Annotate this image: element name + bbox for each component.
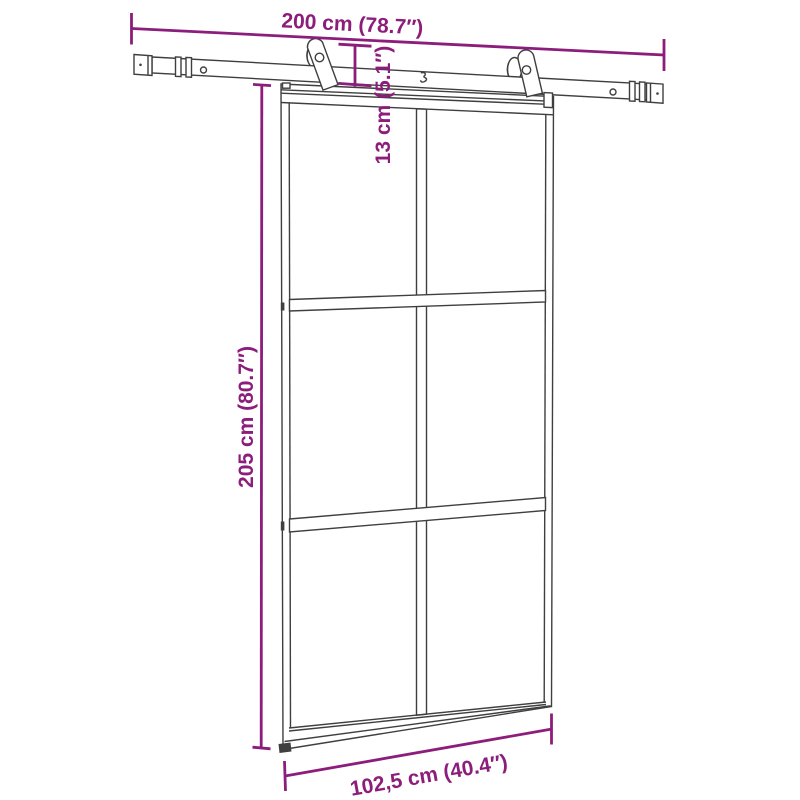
roller-bolt-right xyxy=(522,66,530,74)
dimension-tick-bottom xyxy=(253,747,271,749)
diagram-canvas: 200 cm (78.7″) 13 cm (5.1″) 205 cm (80.7… xyxy=(0,0,800,800)
door-mullion-vertical xyxy=(417,109,427,715)
dimension-tick-top xyxy=(253,84,271,85)
rail-end-cap-left xyxy=(134,55,152,76)
door-mullion-anchor-1 xyxy=(281,303,285,311)
dimension-tick-left xyxy=(285,761,286,791)
collar-ring xyxy=(176,57,182,77)
door xyxy=(279,83,554,753)
door-top-cap-right xyxy=(544,93,553,108)
dimension-line xyxy=(261,86,262,748)
end-cap-left-dot xyxy=(139,64,142,67)
end-cap-right-dot xyxy=(656,92,659,95)
dimension-tick-top xyxy=(339,44,372,46)
end-cap-left-body xyxy=(134,55,152,76)
end-cap-right-body xyxy=(647,83,664,103)
dimension-door-height: 205 cm (80.7″) xyxy=(235,84,271,748)
door-floor-guide xyxy=(279,743,292,754)
dimension-label-door-height: 205 cm (80.7″) xyxy=(235,346,258,488)
roller-bolt-left xyxy=(315,53,324,62)
dimension-label-track-width: 200 cm (78.7″) xyxy=(281,9,424,39)
dimension-label-door-width: 102,5 cm (40.4″) xyxy=(348,750,509,800)
collar-ring xyxy=(640,82,646,102)
door-top-cap-left xyxy=(283,83,291,88)
collar-ring xyxy=(186,57,192,77)
door-mullion-anchor-2 xyxy=(281,522,285,531)
dimension-label-top-clearance: 13 cm (5.1″) xyxy=(372,46,395,165)
collar-ring xyxy=(630,81,636,101)
rail-end-cap-right xyxy=(647,83,664,103)
product-diagram: 200 cm (78.7″) 13 cm (5.1″) 205 cm (80.7… xyxy=(0,0,800,800)
